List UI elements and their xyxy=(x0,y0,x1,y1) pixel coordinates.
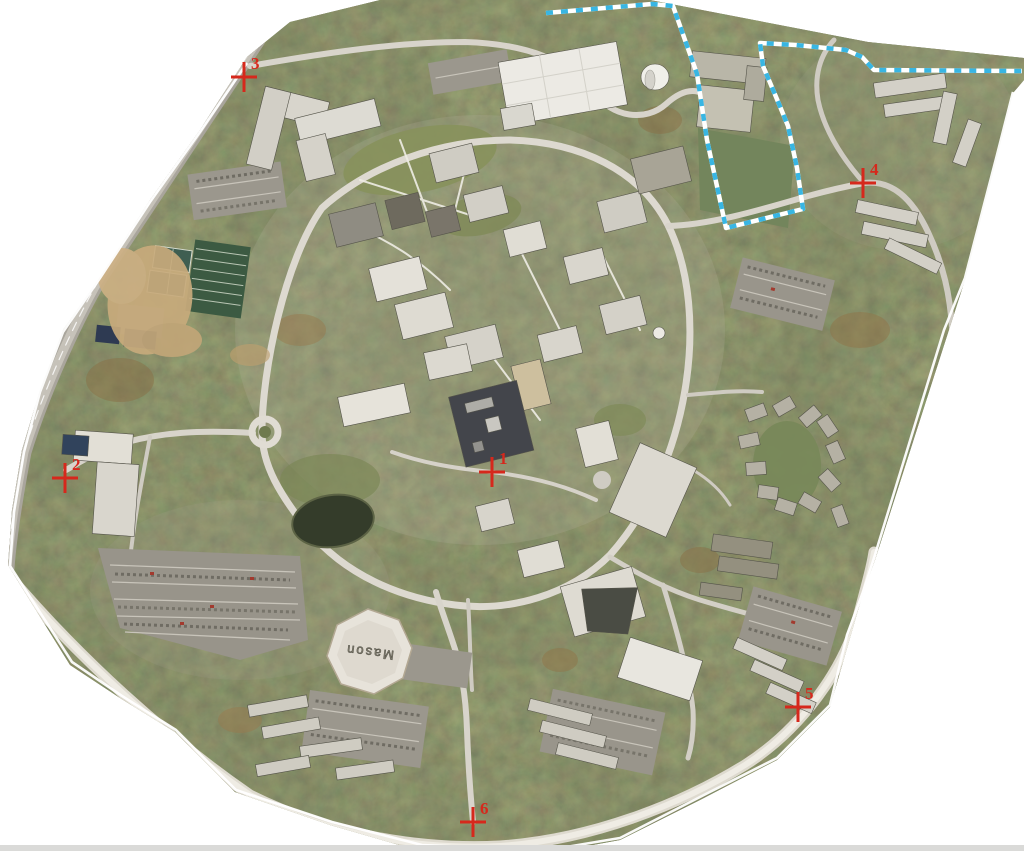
aerial-photo-map: Mason 1 2 3 xyxy=(0,0,1024,851)
marker-label: 4 xyxy=(870,160,879,179)
bottom-edge-strip xyxy=(0,845,1024,851)
photo-base: Mason xyxy=(0,0,1024,851)
marker-label: 1 xyxy=(499,449,508,468)
marker-label: 6 xyxy=(480,799,489,818)
water-tank-small xyxy=(653,327,665,339)
turnaround-circle xyxy=(593,471,611,489)
marker-label: 3 xyxy=(251,54,260,73)
football-field xyxy=(185,239,250,318)
aerial-photo-svg: Mason 1 2 3 xyxy=(0,0,1024,851)
marker-label: 5 xyxy=(805,684,814,703)
marker-label: 2 xyxy=(72,455,81,474)
